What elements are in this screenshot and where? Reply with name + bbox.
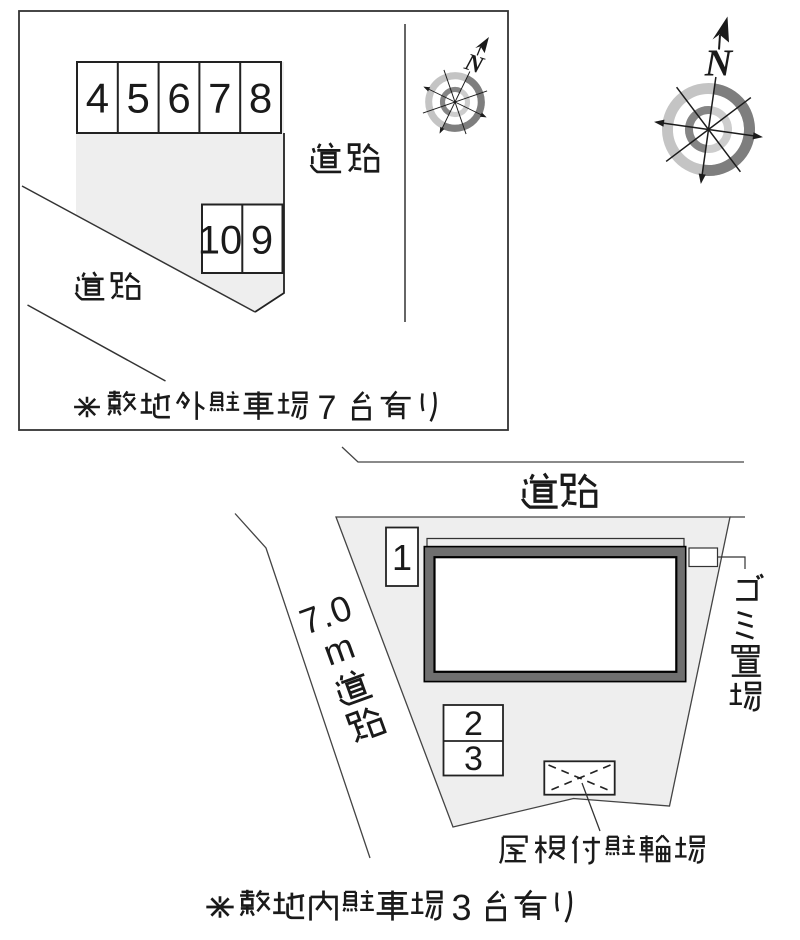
- svg-text:8: 8: [249, 75, 272, 122]
- svg-text:9: 9: [251, 219, 273, 263]
- svg-text:6: 6: [167, 75, 190, 122]
- svg-text:7: 7: [318, 389, 337, 427]
- svg-text:5: 5: [127, 75, 150, 122]
- svg-text:3: 3: [451, 887, 471, 928]
- svg-text:10: 10: [198, 219, 243, 263]
- svg-text:2: 2: [464, 705, 483, 743]
- svg-text:3: 3: [464, 740, 483, 778]
- svg-text:1: 1: [392, 537, 412, 578]
- svg-text:4: 4: [86, 75, 109, 122]
- svg-text:7: 7: [208, 75, 231, 122]
